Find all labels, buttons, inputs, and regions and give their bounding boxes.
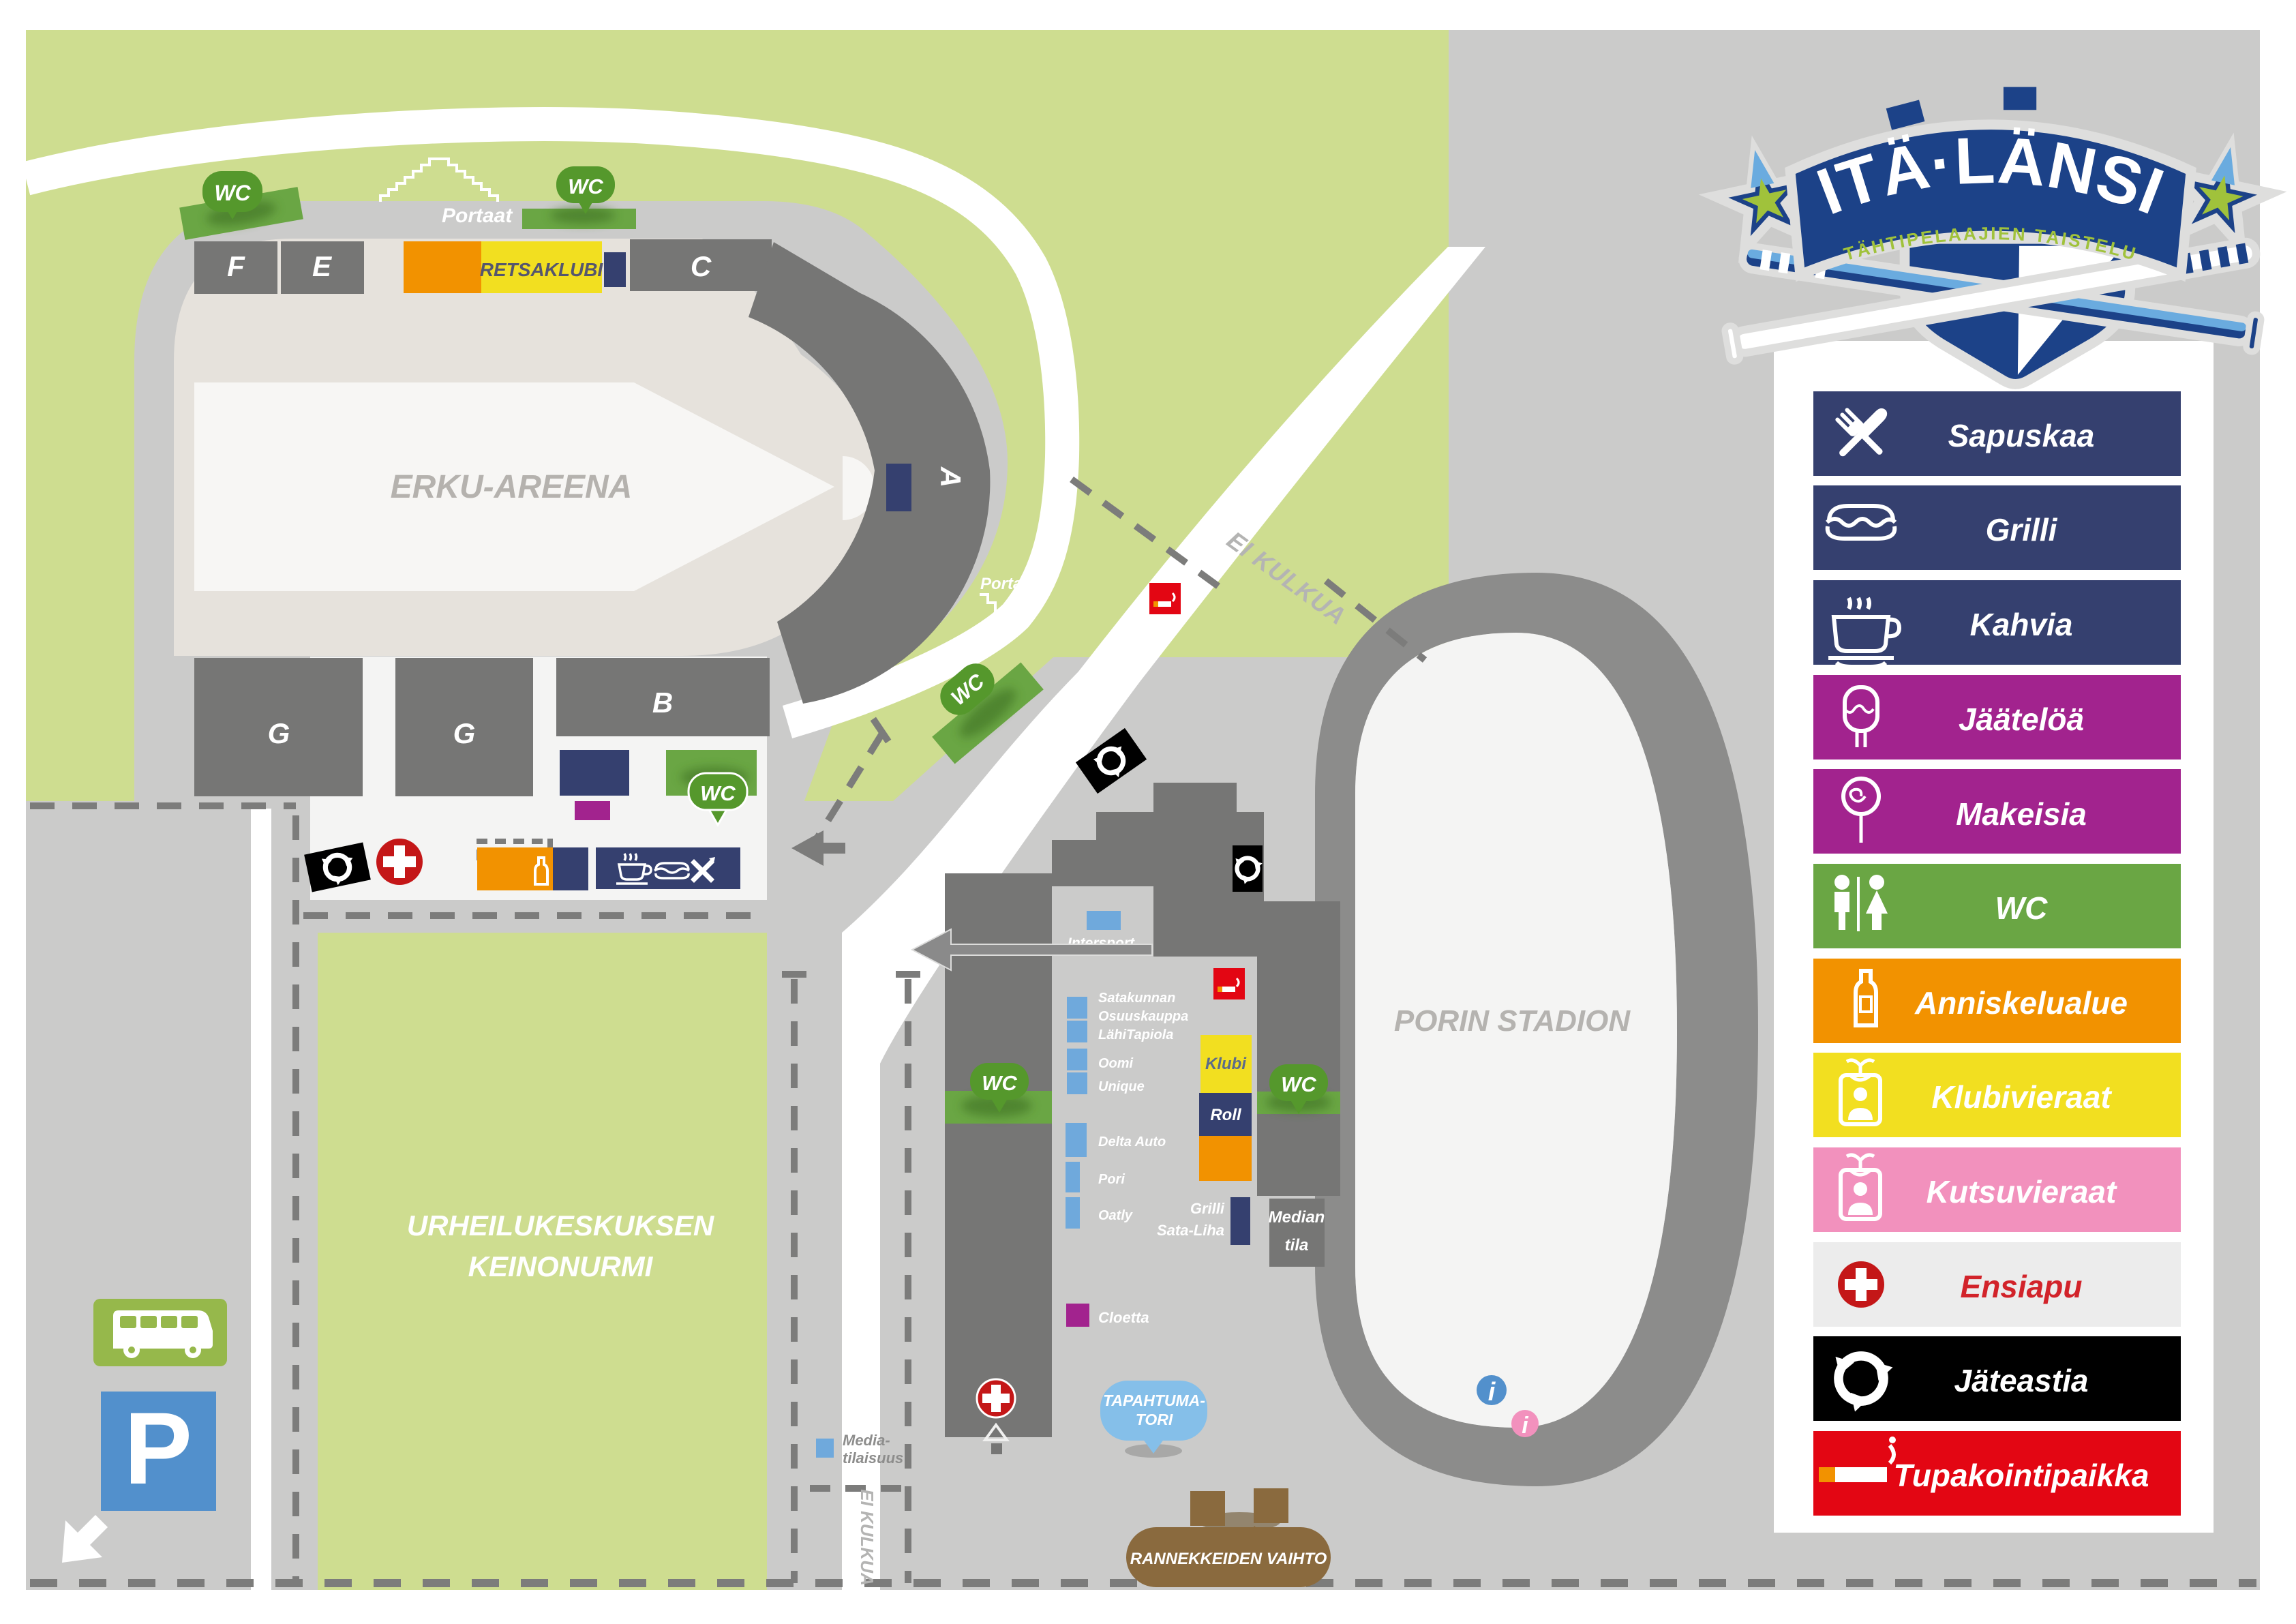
svg-text:Grilli: Grilli xyxy=(1190,1200,1225,1217)
svg-text:Ensiapu: Ensiapu xyxy=(1961,1269,2083,1304)
svg-text:RETSAKLUBI: RETSAKLUBI xyxy=(480,259,604,280)
svg-text:ERKU-AREENA: ERKU-AREENA xyxy=(391,469,633,505)
svg-text:Delta Auto: Delta Auto xyxy=(1098,1134,1166,1149)
svg-text:Cloetta: Cloetta xyxy=(1098,1309,1149,1326)
svg-text:Roll: Roll xyxy=(1210,1106,1242,1124)
svg-text:PORIN STADION: PORIN STADION xyxy=(1394,1004,1631,1038)
svg-text:i: i xyxy=(1488,1378,1496,1407)
svg-text:C: C xyxy=(691,250,712,282)
svg-text:Jäätelöä: Jäätelöä xyxy=(1959,702,2084,737)
svg-text:Sapuskaa: Sapuskaa xyxy=(1948,418,2095,453)
svg-text:A: A xyxy=(935,466,967,487)
svg-text:Pori: Pori xyxy=(1098,1172,1125,1187)
svg-text:Klubivieraat: Klubivieraat xyxy=(1931,1079,2112,1115)
svg-text:EI KULKUA: EI KULKUA xyxy=(857,1489,877,1586)
svg-text:tilaisuus: tilaisuus xyxy=(843,1449,903,1467)
svg-text:TAPAHTUMA-: TAPAHTUMA- xyxy=(1103,1392,1205,1409)
svg-text:E: E xyxy=(312,250,333,282)
svg-text:F: F xyxy=(227,250,245,282)
svg-text:G: G xyxy=(268,717,290,749)
svg-text:TORI: TORI xyxy=(1136,1411,1173,1428)
svg-text:Grilli: Grilli xyxy=(1986,512,2058,547)
svg-text:Satakunnan: Satakunnan xyxy=(1098,991,1175,1006)
svg-text:Kutsuvieraat: Kutsuvieraat xyxy=(1927,1174,2117,1209)
svg-text:B: B xyxy=(652,687,673,719)
svg-text:WC: WC xyxy=(568,175,603,198)
svg-text:RANNEKKEIDEN VAIHTO: RANNEKKEIDEN VAIHTO xyxy=(1130,1550,1327,1568)
svg-text:i: i xyxy=(1522,1413,1529,1439)
svg-text:Oatly: Oatly xyxy=(1098,1208,1133,1223)
svg-text:Portaat: Portaat xyxy=(980,575,1038,593)
svg-text:G: G xyxy=(453,717,476,749)
svg-text:Oomi: Oomi xyxy=(1098,1056,1134,1071)
svg-text:Tupakointipaikka: Tupakointipaikka xyxy=(1894,1458,2149,1493)
svg-text:Jäteastia: Jäteastia xyxy=(1954,1363,2089,1398)
svg-text:Portaat: Portaat xyxy=(442,205,513,227)
svg-text:Osuuskauppa: Osuuskauppa xyxy=(1098,1009,1188,1024)
svg-text:KEINONURMI: KEINONURMI xyxy=(468,1250,654,1282)
svg-text:Unique: Unique xyxy=(1098,1079,1145,1094)
svg-text:WC: WC xyxy=(1281,1072,1316,1096)
svg-text:WC: WC xyxy=(982,1071,1017,1095)
svg-text:tila: tila xyxy=(1285,1236,1309,1254)
svg-text:P: P xyxy=(124,1391,192,1505)
svg-text:Kahvia: Kahvia xyxy=(1970,607,2073,642)
svg-text:URHEILUKESKUKSEN: URHEILUKESKUKSEN xyxy=(407,1209,715,1242)
svg-text:LähiTapiola: LähiTapiola xyxy=(1098,1027,1173,1042)
svg-text:WC: WC xyxy=(214,181,251,205)
svg-text:Anniskelualue: Anniskelualue xyxy=(1914,985,2128,1021)
svg-text:Klubi: Klubi xyxy=(1205,1055,1247,1073)
svg-text:WC: WC xyxy=(1995,890,2048,926)
svg-text:Makeisia: Makeisia xyxy=(1956,796,2087,832)
svg-text:WC: WC xyxy=(700,781,736,805)
svg-text:Median: Median xyxy=(1269,1208,1325,1227)
svg-text:Media-: Media- xyxy=(843,1432,890,1449)
svg-text:Sata-Liha: Sata-Liha xyxy=(1157,1222,1224,1239)
